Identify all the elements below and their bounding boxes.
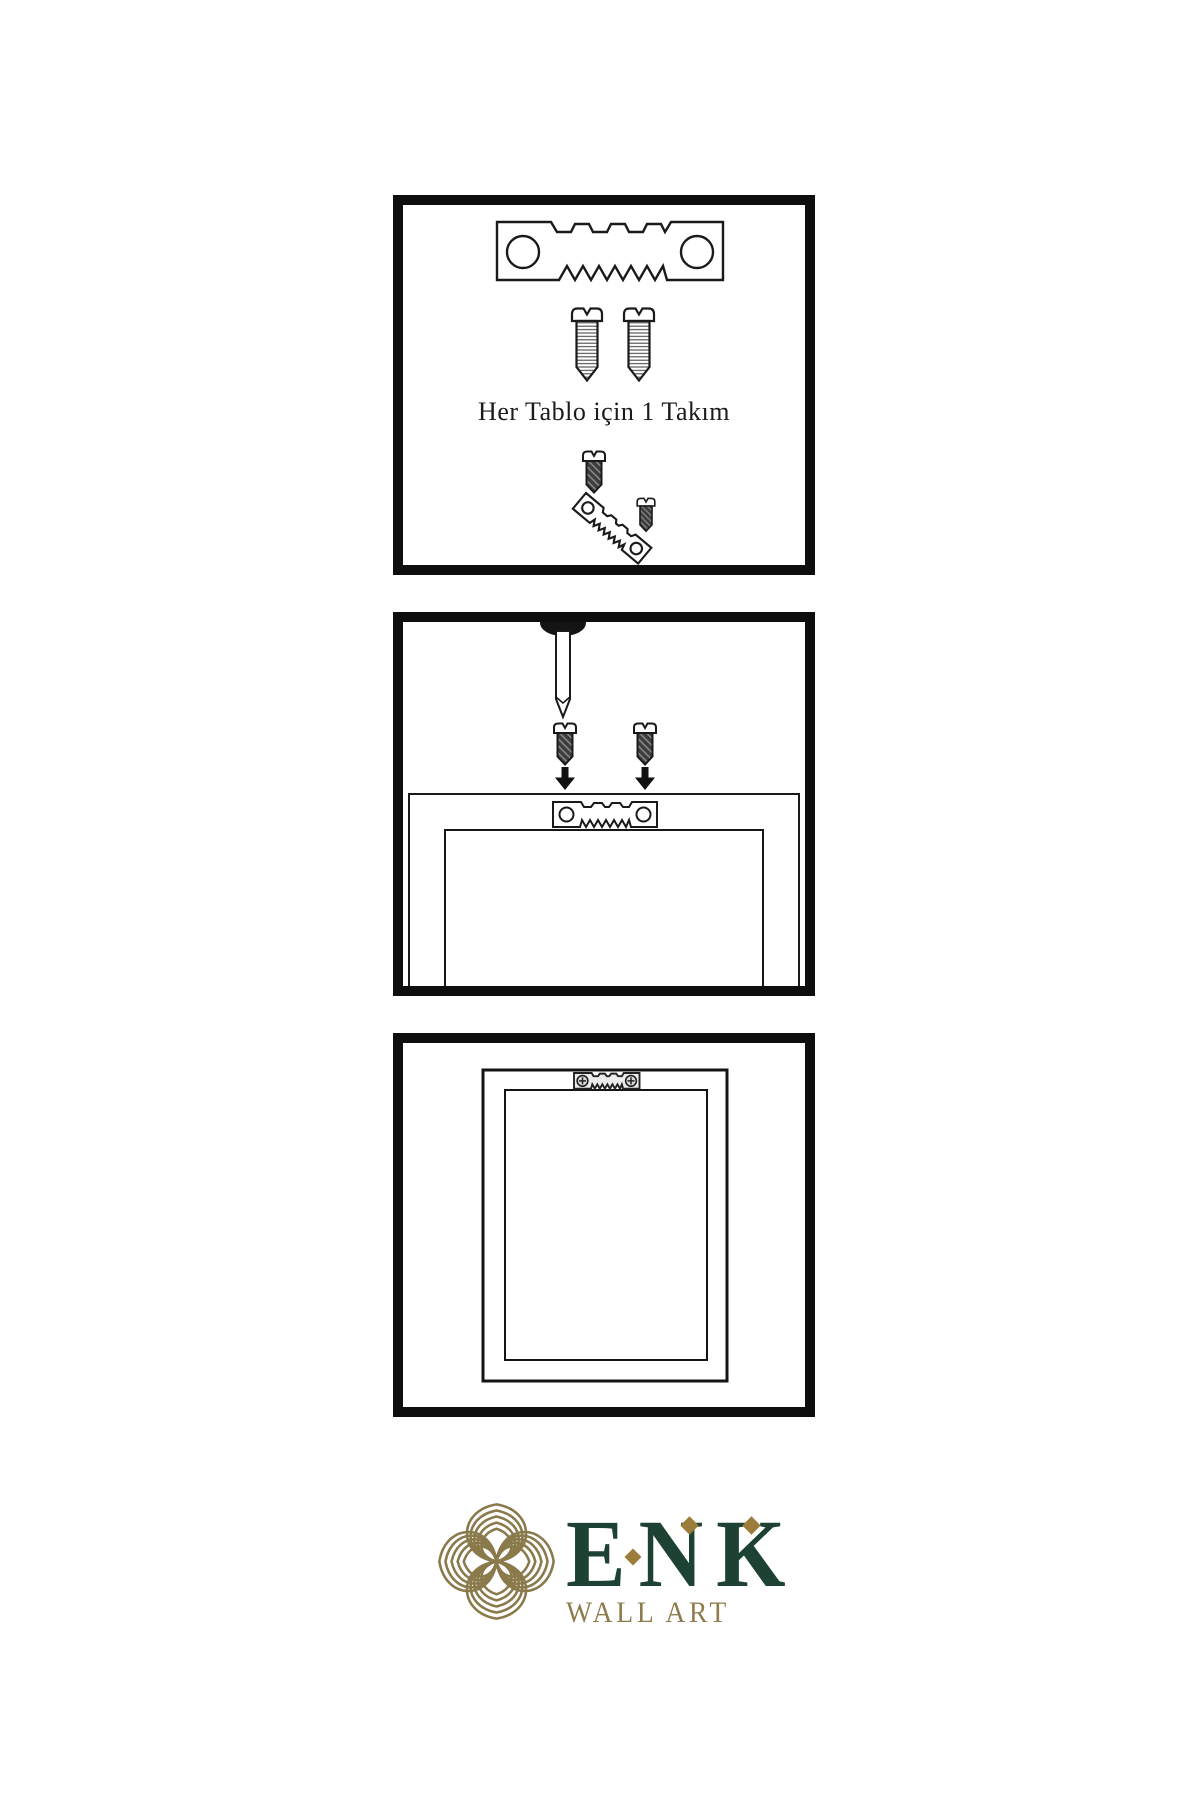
screw-icon xyxy=(554,724,576,765)
down-arrow-icon xyxy=(555,767,575,790)
screw-icon xyxy=(624,309,654,381)
sawtooth-hanger-icon xyxy=(553,802,657,827)
step2-illustration xyxy=(403,622,805,986)
step2-mounting-panel xyxy=(393,612,815,996)
screw-icon xyxy=(634,724,656,765)
brand-wordmark: ENK xyxy=(566,1506,799,1602)
step1-illustration xyxy=(403,205,805,565)
wall-nail-icon xyxy=(540,622,586,717)
brand-subtitle: WALL ART xyxy=(566,1596,730,1630)
hung-frame-outline xyxy=(483,1070,727,1381)
mounted-hanger-icon xyxy=(574,1073,640,1089)
screw-icon xyxy=(572,309,602,381)
step3-illustration xyxy=(403,1043,805,1407)
down-arrow-icon xyxy=(635,767,655,790)
step1-hardware-panel: Her Tablo için 1 Takım xyxy=(393,195,815,575)
sawtooth-hanger-icon xyxy=(497,222,723,280)
enk-knot-logo-icon xyxy=(433,1498,560,1625)
step3-hung-frame-panel xyxy=(393,1033,815,1417)
kit-caption: Her Tablo için 1 Takım xyxy=(403,397,805,427)
screw-into-hanger-icon xyxy=(573,452,655,564)
